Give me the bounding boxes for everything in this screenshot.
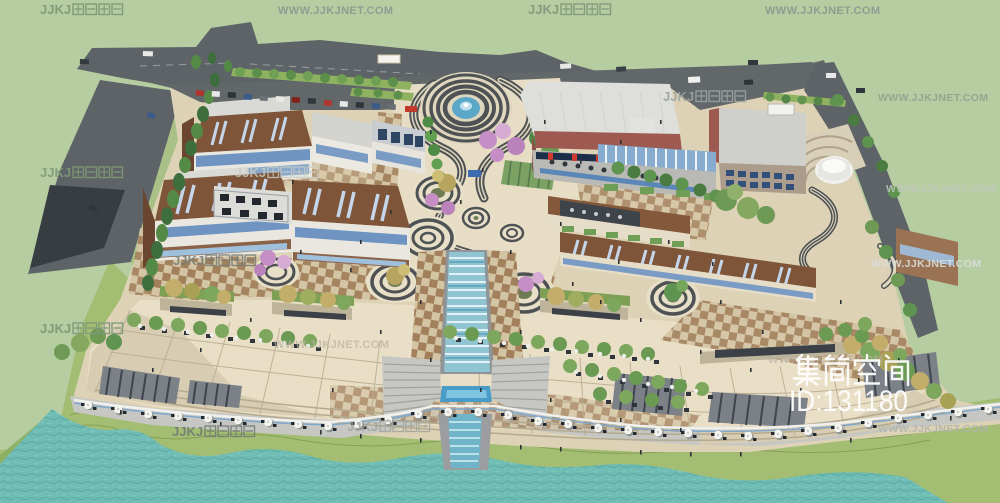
svg-text:WWW.JJKJNET.COM: WWW.JJKJNET.COM xyxy=(278,5,393,17)
svg-text:JJKJ: JJKJ xyxy=(40,321,71,336)
svg-text:JJKJ: JJKJ xyxy=(347,419,378,434)
svg-text:WWW.JJKJNET.COM: WWW.JJKJNET.COM xyxy=(886,183,996,195)
svg-text:JJKJ: JJKJ xyxy=(235,165,266,180)
svg-text:JJKJ: JJKJ xyxy=(172,424,203,439)
svg-text:ID:131180: ID:131180 xyxy=(789,385,908,418)
svg-text:WWW.JJKJNET.COM: WWW.JJKJNET.COM xyxy=(765,5,880,17)
svg-text:JJKJ: JJKJ xyxy=(173,253,204,268)
svg-text:JJKJ: JJKJ xyxy=(40,165,71,180)
svg-text:WWW.JJKJNET.COM: WWW.JJKJNET.COM xyxy=(878,92,988,104)
svg-text:JJKJ: JJKJ xyxy=(40,2,71,17)
svg-text:JJKJ: JJKJ xyxy=(528,2,559,17)
svg-text:WWW.JJKJNET.COM: WWW.JJKJNET.COM xyxy=(878,423,988,435)
svg-text:JJKJ: JJKJ xyxy=(663,89,694,104)
svg-text:WWW.JJKJNET.COM: WWW.JJKJNET.COM xyxy=(274,339,389,351)
svg-text:WWW.JJKJNET.COM: WWW.JJKJNET.COM xyxy=(871,258,981,270)
